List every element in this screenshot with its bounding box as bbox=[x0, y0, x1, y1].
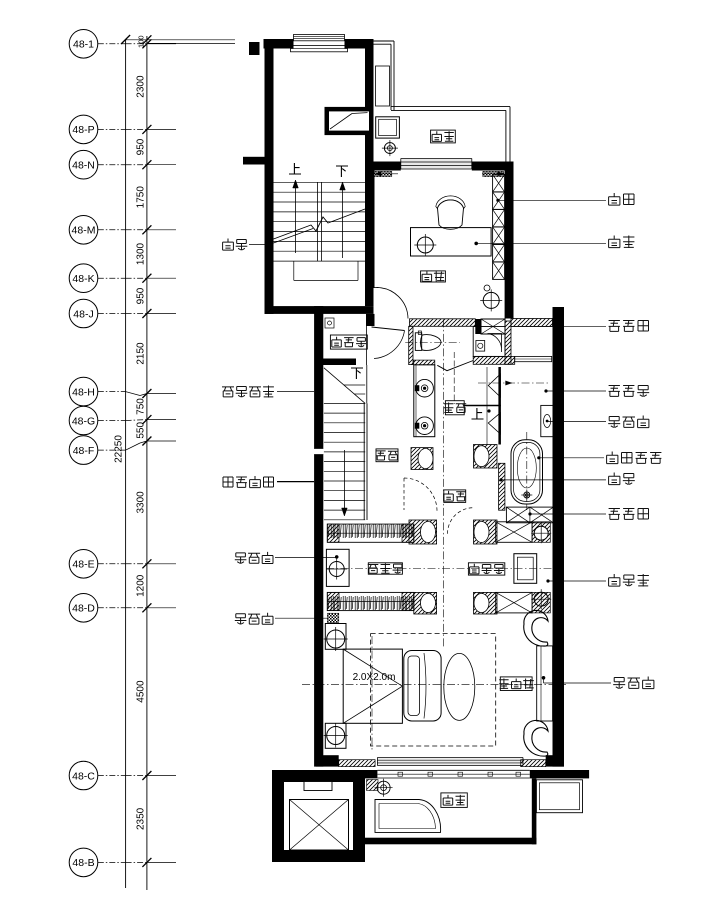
svg-text:2300: 2300 bbox=[136, 75, 147, 98]
svg-text:48-B: 48-B bbox=[72, 857, 94, 869]
svg-text:22250: 22250 bbox=[114, 435, 125, 463]
svg-text:48-H: 48-H bbox=[72, 386, 95, 398]
svg-text:48-C: 48-C bbox=[72, 770, 95, 782]
svg-text:48-1: 48-1 bbox=[73, 39, 94, 51]
svg-text:48-D: 48-D bbox=[72, 603, 95, 615]
svg-text:3300: 3300 bbox=[136, 491, 147, 514]
svg-text:48-N: 48-N bbox=[72, 160, 95, 172]
svg-text:48-M: 48-M bbox=[72, 225, 96, 237]
svg-text:100: 100 bbox=[137, 35, 146, 48]
svg-text:750: 750 bbox=[136, 398, 147, 415]
svg-text:48-F: 48-F bbox=[73, 445, 95, 457]
svg-text:48-E: 48-E bbox=[72, 559, 94, 571]
svg-text:48-G: 48-G bbox=[72, 415, 95, 427]
svg-text:950: 950 bbox=[136, 287, 147, 304]
svg-text:48-P: 48-P bbox=[72, 124, 94, 136]
svg-text:2.0X2.0m: 2.0X2.0m bbox=[353, 672, 396, 683]
svg-text:4500: 4500 bbox=[136, 680, 147, 703]
svg-text:1300: 1300 bbox=[136, 242, 147, 265]
svg-text:48-J: 48-J bbox=[73, 308, 93, 320]
svg-text:2350: 2350 bbox=[136, 807, 147, 830]
svg-text:550: 550 bbox=[136, 422, 147, 439]
svg-text:2150: 2150 bbox=[136, 342, 147, 365]
svg-text:950: 950 bbox=[136, 138, 147, 155]
svg-text:48-K: 48-K bbox=[72, 273, 94, 285]
svg-text:1750: 1750 bbox=[136, 186, 147, 209]
svg-text:1200: 1200 bbox=[136, 574, 147, 597]
